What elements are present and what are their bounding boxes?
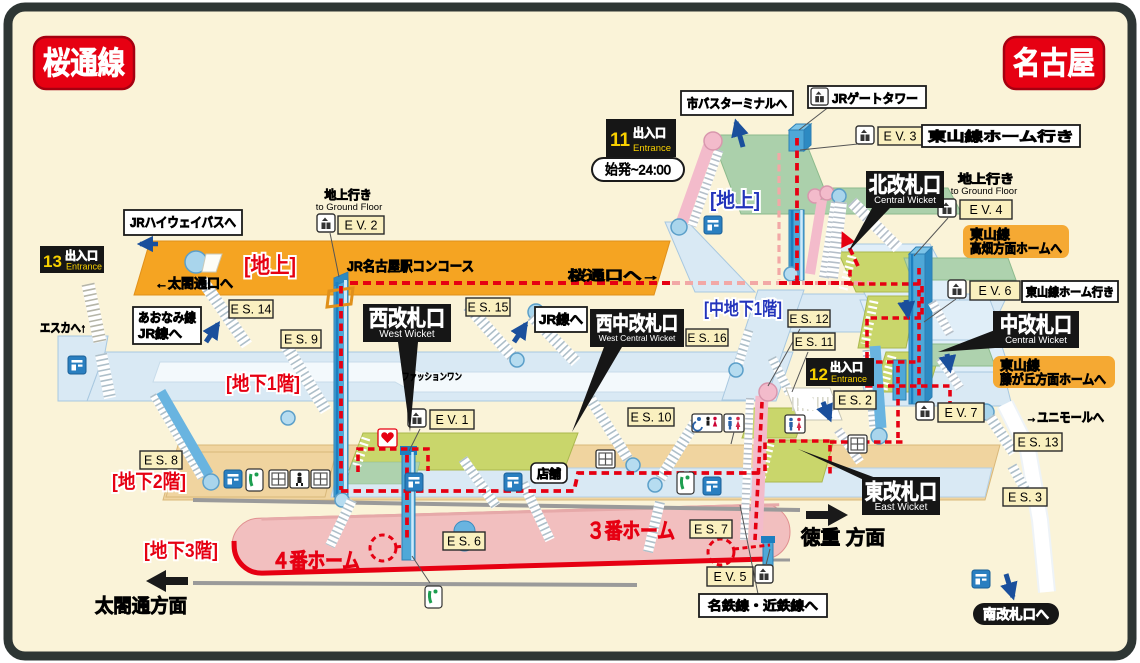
svg-text:E V. 4: E V. 4 [970,203,1003,217]
svg-text:東山線ホーム行き: 東山線ホーム行き [1026,285,1114,299]
svg-text:Central Wicket: Central Wicket [1005,335,1067,346]
svg-text:E S. 15: E S. 15 [468,301,509,315]
svg-text:E V. 5: E V. 5 [714,570,747,584]
svg-text:東山線ホーム行き: 東山線ホーム行き [928,129,1074,144]
svg-text:出入口: 出入口 [65,249,98,263]
svg-text:南改札口へ: 南改札口へ [983,606,1049,622]
svg-text:出入口: 出入口 [633,125,666,140]
svg-text:E S. 7: E S. 7 [694,523,728,537]
svg-text:西中改札口: 西中改札口 [596,312,678,335]
svg-text:E V. 1: E V. 1 [436,413,469,427]
svg-text:JR名古屋駅コンコース: JR名古屋駅コンコース [347,258,474,274]
svg-text:JR線へ: JR線へ [138,326,183,341]
svg-text:11: 11 [610,130,631,151]
svg-text:E V. 3: E V. 3 [884,130,917,144]
svg-text:東山線: 東山線 [970,227,1011,242]
svg-text:西改札口: 西改札口 [369,306,445,331]
svg-text:[地上]: [地上] [710,189,760,212]
svg-text:徳重 方面: 徳重 方面 [800,526,885,549]
svg-text:Central Wicket: Central Wicket [874,195,936,206]
svg-text:東山線: 東山線 [1000,358,1041,373]
svg-text:to Ground Floor: to Ground Floor [316,202,383,213]
svg-text:[中地下1階]: [中地下1階] [704,298,782,319]
svg-text:Entrance: Entrance [831,374,867,384]
svg-text:ファッションワン: ファッションワン [402,372,462,383]
svg-text:[地下1階]: [地下1階] [226,372,300,395]
svg-text:JRハイウェイバスへ: JRハイウェイバスへ [130,215,236,230]
svg-text:あおなみ線: あおなみ線 [138,310,196,325]
svg-text:→ユニモールへ: →ユニモールへ [1026,410,1104,425]
svg-text:JR線へ: JR線へ [539,312,583,327]
svg-text:JRゲートタワー: JRゲートタワー [832,91,918,106]
svg-text:東改札口: 東改札口 [865,480,937,504]
svg-text:桜通口へ→: 桜通口へ→ [568,268,660,283]
svg-text:中改札口: 中改札口 [1000,313,1072,337]
svg-text:Entrance: Entrance [633,143,671,154]
svg-text:E S. 16: E S. 16 [687,331,727,345]
svg-text:名鉄線・近鉄線へ: 名鉄線・近鉄線へ [708,598,819,613]
svg-text:名古屋: 名古屋 [1013,46,1095,81]
svg-text:E S. 3: E S. 3 [1008,491,1042,505]
svg-text:出入口: 出入口 [830,360,863,374]
svg-text:West Wicket: West Wicket [379,329,435,340]
svg-text:[地下2階]: [地下2階] [112,470,186,493]
svg-text:北改札口: 北改札口 [869,173,941,197]
svg-text:13: 13 [43,252,62,271]
svg-text:桜通線: 桜通線 [43,46,125,81]
svg-text:地上行き: 地上行き [325,187,372,202]
svg-text:市バスターミナルへ: 市バスターミナルへ [687,96,787,111]
svg-text:E S. 13: E S. 13 [1018,436,1059,450]
svg-text:12: 12 [809,365,828,384]
svg-text:３番ホーム: ３番ホーム [587,520,675,543]
svg-text:４番ホーム: ４番ホーム [272,550,360,573]
svg-text:E S. 6: E S. 6 [447,535,481,549]
svg-text:E V. 7: E V. 7 [945,406,978,420]
svg-text:[地上]: [地上] [244,253,296,278]
svg-text:West Central Wicket: West Central Wicket [599,333,676,343]
svg-text:Entrance: Entrance [66,262,102,272]
svg-text:太閤通方面: 太閤通方面 [95,594,187,617]
svg-text:E S. 10: E S. 10 [631,411,672,425]
svg-text:E S. 9: E S. 9 [284,333,318,347]
svg-text:E V. 2: E V. 2 [345,219,378,233]
svg-text:to Ground Floor: to Ground Floor [951,186,1018,197]
svg-text:藤が丘方面ホームへ: 藤が丘方面ホームへ [1000,372,1106,387]
svg-text:E S. 2: E S. 2 [838,394,872,408]
svg-text:←太閤通口へ: ←太閤通口へ [155,276,233,291]
svg-text:E V. 6: E V. 6 [979,284,1012,298]
svg-text:店舗: 店舗 [537,466,561,481]
svg-text:始発~24:00: 始発~24:00 [605,162,671,178]
svg-text:East Wicket: East Wicket [875,502,928,513]
svg-text:E S. 14: E S. 14 [231,303,272,317]
svg-text:E S. 8: E S. 8 [144,454,178,468]
svg-text:エスカへ↑: エスカへ↑ [40,321,86,335]
svg-text:高畑方面ホームへ: 高畑方面ホームへ [970,241,1062,256]
svg-text:E S. 12: E S. 12 [789,312,829,326]
svg-text:E S. 11: E S. 11 [795,335,834,349]
svg-text:[地下3階]: [地下3階] [144,539,218,562]
svg-text:地上行き: 地上行き [958,171,1014,186]
